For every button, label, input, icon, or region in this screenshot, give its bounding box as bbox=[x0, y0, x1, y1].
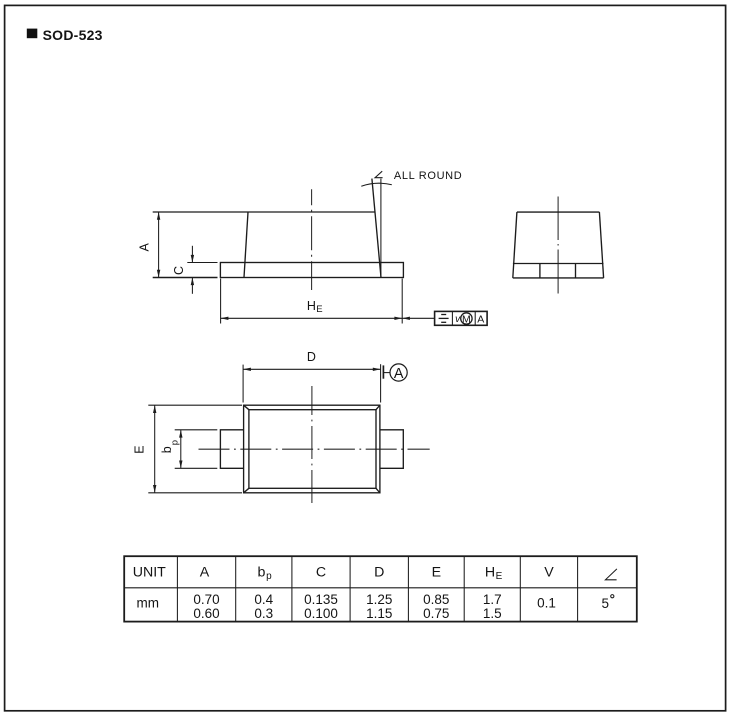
svg-text:1.7: 1.7 bbox=[483, 592, 502, 607]
svg-text:V: V bbox=[544, 565, 554, 581]
svg-text:SOD-523: SOD-523 bbox=[43, 27, 103, 43]
svg-text:p: p bbox=[266, 571, 272, 582]
svg-text:C: C bbox=[316, 565, 326, 581]
svg-text:b: b bbox=[258, 565, 266, 581]
svg-text:0.4: 0.4 bbox=[254, 592, 273, 607]
svg-text:E: E bbox=[133, 445, 147, 453]
svg-text:UNIT: UNIT bbox=[133, 565, 166, 581]
svg-text:1.25: 1.25 bbox=[366, 592, 392, 607]
svg-text:A: A bbox=[200, 565, 210, 581]
svg-text:D: D bbox=[307, 350, 316, 364]
svg-text:D: D bbox=[374, 565, 384, 581]
svg-text:1.5: 1.5 bbox=[483, 606, 502, 621]
svg-text:E: E bbox=[496, 571, 503, 582]
svg-text:mm: mm bbox=[137, 596, 160, 611]
svg-text:0.85: 0.85 bbox=[423, 592, 449, 607]
svg-text:0.60: 0.60 bbox=[193, 606, 219, 621]
svg-text:A: A bbox=[394, 366, 404, 382]
svg-text:b: b bbox=[160, 446, 174, 453]
svg-text:ALL ROUND: ALL ROUND bbox=[394, 170, 463, 182]
svg-text:E: E bbox=[316, 304, 322, 315]
svg-text:0.70: 0.70 bbox=[193, 592, 219, 607]
svg-text:0.135: 0.135 bbox=[304, 592, 338, 607]
svg-text:C: C bbox=[172, 266, 186, 275]
svg-text:0.1: 0.1 bbox=[537, 596, 556, 611]
svg-text:1.15: 1.15 bbox=[366, 606, 392, 621]
svg-text:0.75: 0.75 bbox=[423, 606, 449, 621]
svg-text:H: H bbox=[485, 565, 495, 581]
svg-text:0.3: 0.3 bbox=[254, 606, 273, 621]
svg-text:0.100: 0.100 bbox=[304, 606, 338, 621]
svg-text:A: A bbox=[477, 313, 484, 325]
svg-text:E: E bbox=[432, 565, 441, 581]
svg-text:5: 5 bbox=[602, 596, 610, 611]
svg-text:p: p bbox=[169, 440, 180, 445]
svg-text:H: H bbox=[307, 299, 316, 313]
svg-text:M: M bbox=[462, 313, 471, 325]
svg-text:A: A bbox=[137, 243, 151, 252]
